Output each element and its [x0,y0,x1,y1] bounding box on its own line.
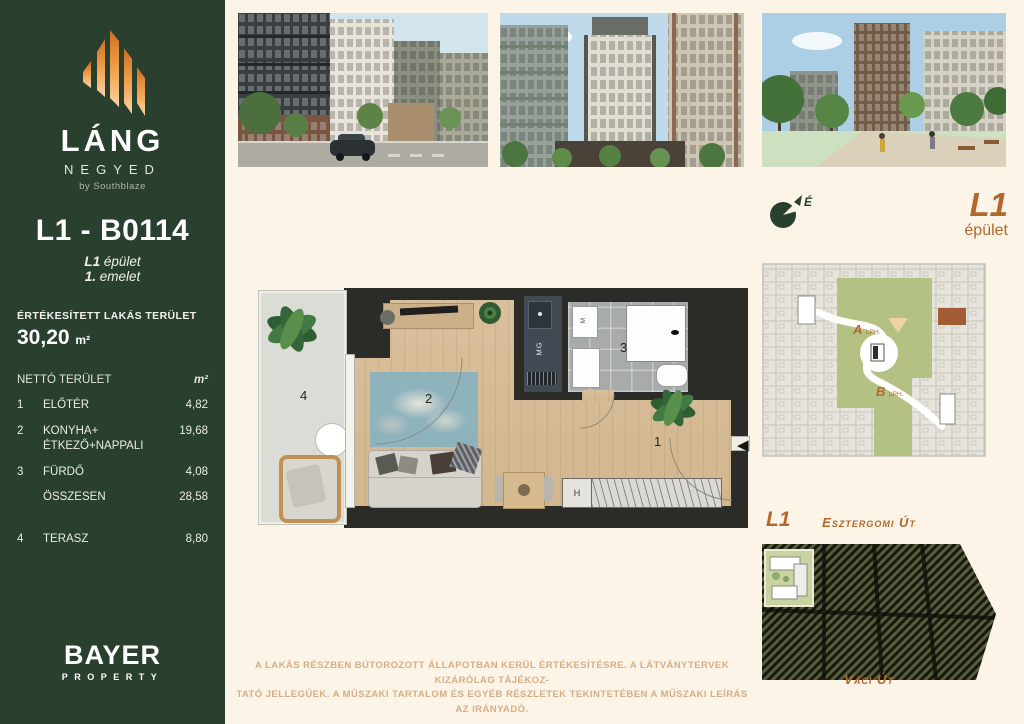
sofa-pillow [375,453,399,475]
map-site-thumbnail [765,550,813,606]
table-header-unit: m² [194,374,208,386]
sold-area-label: ÉRTÉKESÍTETT LAKÁS TERÜLET [17,310,208,322]
faucet-dot [538,312,542,316]
brand-byline: by Southblaze [0,181,225,192]
shower-drain [671,330,679,335]
render-photo-street [238,13,488,167]
area-table-header: NETTÓ TERÜLET m² [17,374,208,386]
floor-siteplan: A LPH. B LPH. [760,256,990,469]
disclaimer-line-1: A LAKÁS RÉSZBEN BÚTOROZOTT ÁLLAPOTBAN KE… [236,659,748,688]
washer-label: M [580,318,587,323]
desk-chair [380,310,395,325]
chair-cushion [285,464,326,508]
terrace-plant-icon [263,297,321,361]
location-map [762,544,996,685]
street-label-bottom: Váci Út [790,672,948,687]
stove-grate [527,372,557,385]
compass-north-icon: É [768,193,818,231]
dining-chair [544,476,553,502]
shower [626,305,686,362]
wardrobe-h-unit: H [562,478,592,508]
sofa-seam [369,477,481,478]
bathroom-sink [572,348,600,388]
sofa [368,450,482,508]
wardrobe-hatched [591,478,722,508]
building-word: épület [100,254,141,269]
terrace-glass-door [345,354,355,508]
kitchen-sink [528,301,552,329]
entrance-arrow-icon: ◀ [737,438,749,453]
row-name: TERASZ [43,532,186,548]
table-header-label: NETTÓ TERÜLET [17,374,111,386]
tower-render-illustration [500,13,744,167]
disclaimer-line-2: TATÓ JELLEGŰEK. A MŰSZAKI TARTALOM ÉS EG… [236,688,748,717]
bathroom-floor: M [568,302,688,392]
terrace-table [315,423,349,457]
sofa-pillow [398,456,419,475]
sold-area-value: 30,20 m² [17,326,208,350]
washing-machine: M [572,306,598,338]
monitor [400,305,458,315]
lounge-chair [279,455,341,523]
apartment-floorplan: MG M [258,288,748,528]
row-name: KONYHA+ÉTKEZŐ+NAPPALI [43,424,179,455]
agency-type: PROPERTY [0,672,225,682]
siteplan-illustration: A LPH. B LPH. [760,256,990,464]
row-name-text: KONYHA+ [43,425,98,437]
row-number: 3 [17,465,43,481]
row-name-text2: ÉTKEZŐ+NAPPALI [43,439,179,455]
row-name-text: TERASZ [43,533,88,545]
building-line: L1 épület [0,254,225,269]
bathroom-door-gap [582,390,614,402]
brand-subtitle: NEGYED [0,162,225,177]
floor-word: emelet [96,269,140,284]
render-photo-tower [500,13,744,167]
staircase-b-label: B [876,384,885,399]
sold-area-number: 30,20 [17,326,70,349]
row-name-text: ÖSSZESEN [43,491,106,503]
area-table: NETTÓ TERÜLET m² 1 ELŐTÉR 4,82 2 KONYHA+… [17,374,208,547]
street-render-illustration [238,13,488,167]
table-row-osszesen: ÖSSZESEN 28,58 [17,490,208,506]
sidebar: LÁNG NEGYED by Southblaze L1 - B0114 L1 … [0,0,225,724]
room-number-entry: 1 [654,434,661,449]
location-map-illustration [762,544,996,680]
row-name-text: ELŐTÉR [43,399,89,411]
row-value: 28,58 [179,490,208,506]
terrace [258,290,347,525]
unit-code: L1 - B0114 [0,214,225,248]
building-code: L1 [84,254,100,269]
table-row-furdo: 3 FÜRDŐ 4,08 [17,465,208,481]
street-label-top: Esztergomi Út [790,515,948,530]
row-number [17,490,43,506]
table-row-terasz: 4 TERASZ 8,80 [17,532,208,548]
building-callout-word: épület [900,222,1008,240]
lang-negyed-logo [53,24,173,121]
row-name-text: FÜRDŐ [43,466,84,478]
room-number-living: 2 [425,391,432,406]
wardrobe-label: H [574,488,581,498]
staircase-a-label: A [852,322,862,337]
building-callout-code: L1 [900,188,1008,221]
dishwasher-label: MG [535,341,544,355]
room-number-bath: 3 [620,340,627,355]
compass: É [768,193,818,236]
room-number-terrace: 4 [300,388,307,403]
building-callout: L1 épület [900,188,1008,240]
row-number: 1 [17,398,43,414]
desk [383,303,474,329]
map-building-code: L1 [766,508,791,532]
row-name: ÖSSZESEN [43,490,179,506]
agency-logo: BAYER PROPERTY [0,640,225,682]
staircase-a-suffix: LPH. [866,329,881,336]
dining-table [503,472,545,509]
kitchen-counter: MG [524,296,562,392]
staircase-b-suffix: LPH. [889,391,904,398]
north-label: É [804,194,813,209]
table-centerpiece [518,484,530,496]
floor-line: 1. emelet [0,269,225,284]
floor-number: 1. [85,269,96,284]
brand-title: LÁNG [0,123,225,159]
row-value: 4,08 [186,465,208,481]
row-value: 8,80 [186,532,208,548]
table-row-konyha: 2 KONYHA+ÉTKEZŐ+NAPPALI 19,68 [17,424,208,455]
render-photo-park [762,13,1006,167]
row-number: 2 [17,424,43,455]
disclaimer: A LAKÁS RÉSZBEN BÚTOROZOTT ÁLLAPOTBAN KE… [236,659,748,718]
agency-name: BAYER [0,640,225,671]
sold-area-unit: m² [75,333,90,347]
row-value: 19,68 [179,424,208,455]
row-name: FÜRDŐ [43,465,186,481]
entry-plant-icon [648,384,698,432]
row-name: ELŐTÉR [43,398,186,414]
row-number: 4 [17,532,43,548]
flame-logo-icon [53,24,173,116]
area-rug [370,372,478,447]
floor-plant-icon [476,298,504,328]
park-render-illustration [762,13,1006,167]
table-row-eloter: 1 ELŐTÉR 4,82 [17,398,208,414]
brochure-page: LÁNG NEGYED by Southblaze L1 - B0114 L1 … [0,0,1024,724]
row-value: 4,82 [186,398,208,414]
